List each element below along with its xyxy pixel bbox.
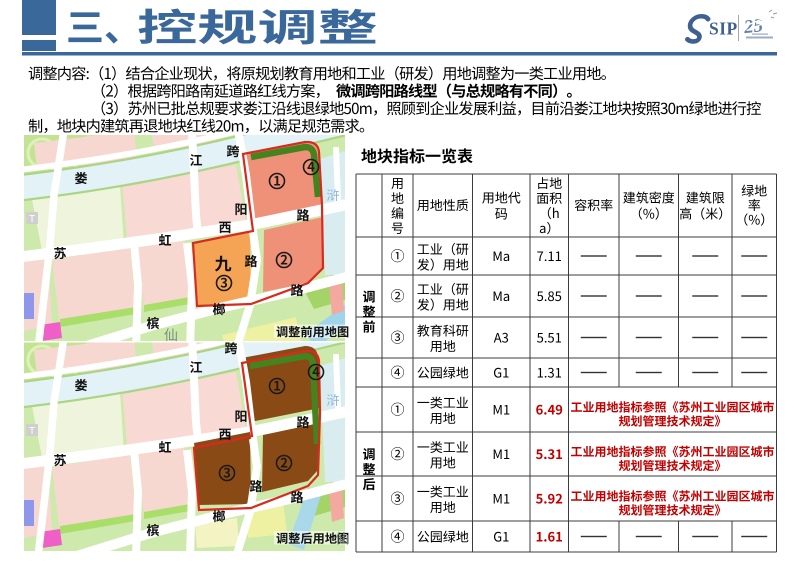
svg-text:T: T <box>29 426 35 437</box>
svg-text:SIP: SIP <box>709 19 738 39</box>
svg-text:T: T <box>29 214 35 225</box>
